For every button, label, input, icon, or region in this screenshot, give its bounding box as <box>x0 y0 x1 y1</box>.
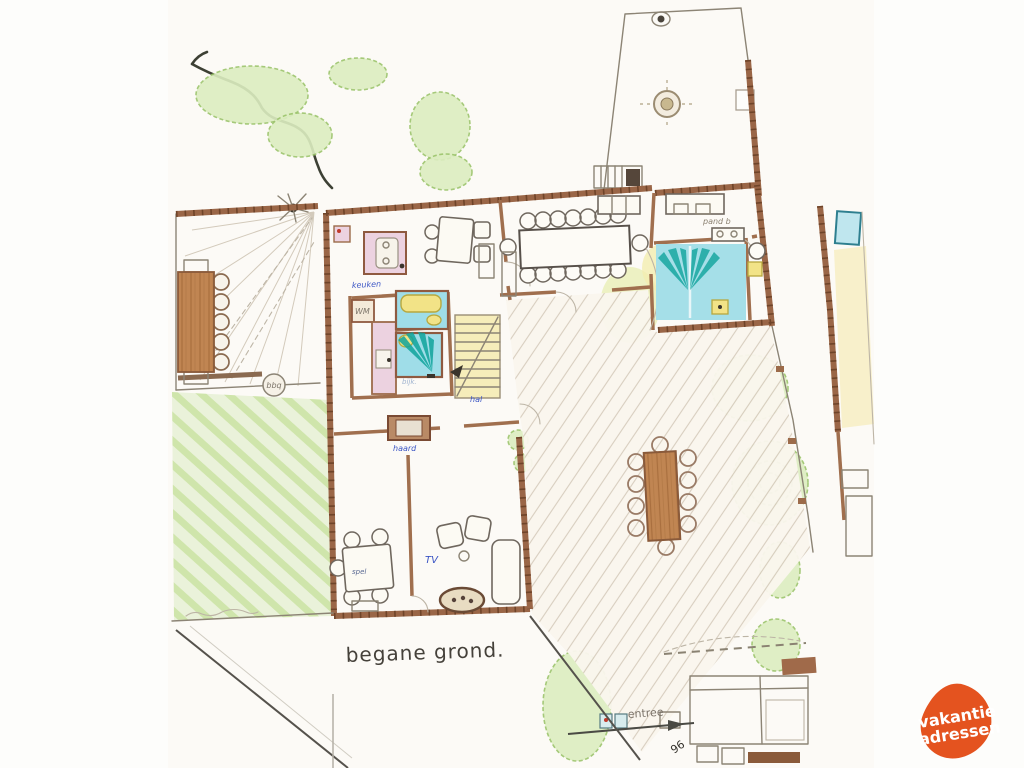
wm-label: WM <box>355 307 370 316</box>
blue-bed <box>835 211 861 245</box>
carport-wall <box>781 657 816 675</box>
shower-wc <box>396 332 442 378</box>
bush <box>268 113 332 157</box>
bedroom-label: pand b <box>702 217 731 226</box>
barn-vent-core <box>658 16 665 23</box>
boundary-post <box>776 366 784 372</box>
keuken-label: keuken <box>352 279 382 290</box>
spel-label: spel <box>352 568 366 576</box>
utility-box <box>615 714 627 728</box>
armchair <box>464 515 492 542</box>
boundary-post <box>788 438 796 444</box>
nook-chair <box>474 246 490 262</box>
tv-label: TV <box>425 555 439 566</box>
kitchen-counter <box>364 232 406 274</box>
bed <box>666 194 724 214</box>
bathtub <box>401 295 441 312</box>
pantry-drain <box>387 358 391 362</box>
sideboard <box>598 196 640 214</box>
bijkeuken-label: bijk. <box>402 378 417 386</box>
sofa <box>492 540 520 604</box>
floorplan-drawing: bbq keuken <box>0 0 1024 768</box>
stairs <box>450 315 500 398</box>
entree-label: entree <box>627 706 664 721</box>
bush <box>420 154 472 190</box>
washbasin <box>427 315 441 325</box>
washbasin-unit <box>712 228 744 241</box>
bbq: bbq <box>263 374 285 396</box>
hal-label: hal <box>470 395 483 404</box>
nook-table <box>436 217 474 264</box>
terrace-chairs <box>213 274 229 370</box>
lawn <box>172 392 333 620</box>
cistern <box>748 262 762 276</box>
boundary-post <box>798 498 806 504</box>
nook-chair <box>474 222 490 238</box>
armchair <box>436 522 464 549</box>
stove-knob <box>337 229 341 233</box>
coffee-table <box>440 588 484 612</box>
bbq-label: bbq <box>266 381 281 390</box>
haard-label: haard <box>393 444 417 453</box>
scanned-floorplan-page: bbq keuken <box>0 0 1024 768</box>
game-table <box>342 544 394 592</box>
dining-table <box>519 226 631 269</box>
wooden-table <box>178 272 214 372</box>
bush <box>410 92 470 160</box>
stove <box>334 226 350 242</box>
outdoor-table <box>644 451 681 541</box>
toilet <box>749 243 765 259</box>
step-wall <box>748 752 800 763</box>
bush <box>329 58 387 90</box>
bathroom <box>396 291 448 329</box>
